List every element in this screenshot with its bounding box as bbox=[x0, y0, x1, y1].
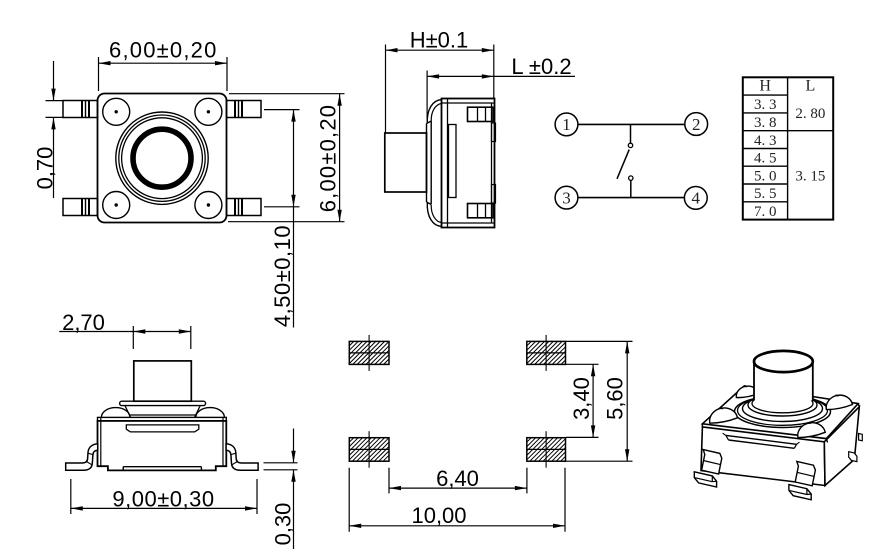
svg-text:3: 3 bbox=[562, 188, 571, 207]
svg-text:4. 5: 4. 5 bbox=[754, 151, 777, 167]
svg-text:6,00±0,20: 6,00±0,20 bbox=[316, 104, 341, 213]
svg-text:6,40: 6,40 bbox=[436, 466, 479, 491]
svg-text:L ±0.2: L ±0.2 bbox=[511, 54, 571, 79]
svg-text:H±0.1: H±0.1 bbox=[410, 28, 469, 53]
svg-text:3. 8: 3. 8 bbox=[754, 115, 777, 131]
svg-text:5. 5: 5. 5 bbox=[754, 186, 777, 202]
svg-text:0,30: 0,30 bbox=[271, 503, 296, 546]
svg-text:3. 3: 3. 3 bbox=[754, 97, 777, 113]
svg-text:2. 80: 2. 80 bbox=[795, 106, 825, 122]
svg-text:2: 2 bbox=[692, 115, 701, 134]
svg-text:4,50±0,10: 4,50±0,10 bbox=[270, 225, 295, 327]
svg-text:3. 15: 3. 15 bbox=[795, 168, 825, 184]
svg-text:6,00±0,20: 6,00±0,20 bbox=[109, 38, 218, 63]
svg-text:10,00: 10,00 bbox=[411, 503, 466, 528]
svg-text:1: 1 bbox=[562, 115, 571, 134]
svg-text:7. 0: 7. 0 bbox=[754, 204, 777, 220]
svg-text:5,60: 5,60 bbox=[603, 377, 628, 420]
svg-text:4: 4 bbox=[692, 189, 701, 208]
svg-text:L: L bbox=[806, 78, 816, 95]
svg-text:9,00±0,30: 9,00±0,30 bbox=[112, 487, 214, 512]
svg-text:H: H bbox=[759, 78, 771, 95]
svg-text:5. 0: 5. 0 bbox=[754, 168, 777, 184]
svg-text:3,40: 3,40 bbox=[569, 377, 594, 420]
svg-text:4. 3: 4. 3 bbox=[754, 133, 777, 149]
